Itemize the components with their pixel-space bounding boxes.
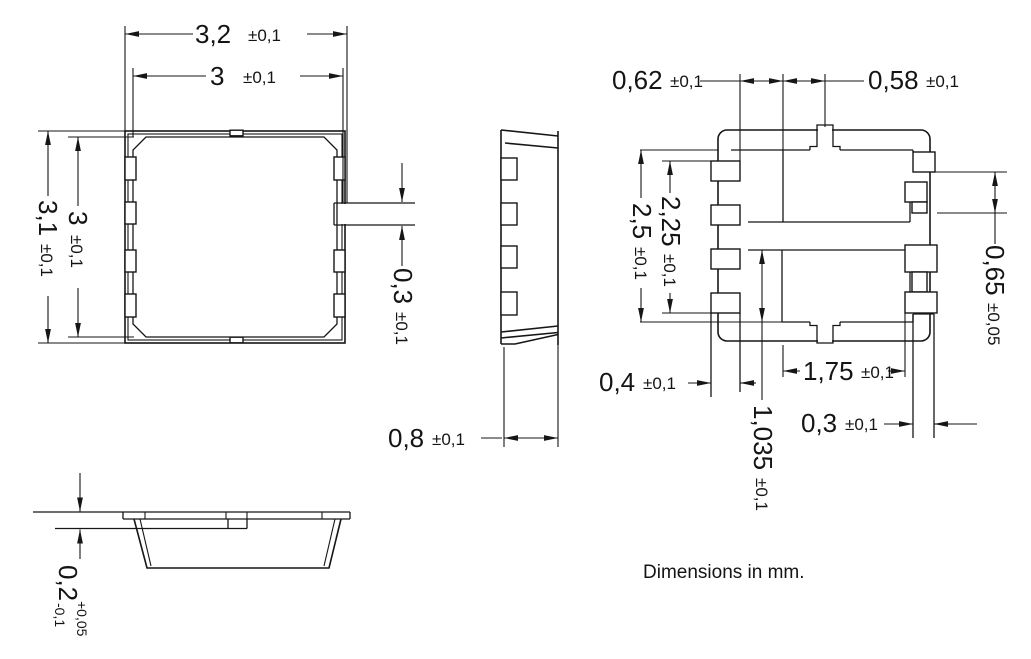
dim-top-height-outer-tol: ±0,1 [37,244,56,277]
dim-pad-right-value: 0,65 [980,245,1010,296]
bottom-seam-mark [230,337,243,343]
dim-center-width-tol: ±0,1 [861,363,894,382]
dim-top-height-lid-tol: ±0,1 [67,235,86,268]
dim-top-width-lid-value: 3 [210,61,224,91]
dim-span-outer-tol: ±0,1 [631,247,650,280]
dim-leg-width-value: 0,3 [801,408,837,438]
dim-front-step-tol-minus: -0,1 [52,603,68,627]
dim-gap-left-value: 0,62 [612,65,663,95]
dim-gap-right-value: 0,58 [868,65,919,95]
dim-pad-width-tol: ±0,1 [643,374,676,393]
dim-span-inner-value: 2,25 [656,196,686,247]
dim-top-tab-value: 0,3 [388,268,418,304]
caption: Dimensions in mm. [643,562,805,583]
dim-center-height-value: 1,035 [748,405,778,470]
dim-center-width-value: 1,75 [803,356,854,386]
dim-top-height-outer-value: 3,1 [33,200,63,236]
dim-gap-right-tol: ±0,1 [926,72,959,91]
top-view: 3,2 ±0,1 3 ±0,1 3,1 ±0,1 3 ±0,1 0,3 ±0,1 [33,19,418,345]
technical-drawing: 3,2 ±0,1 3 ±0,1 3,1 ±0,1 3 ±0,1 0,3 ±0,1… [0,0,1031,659]
dim-gap-left-tol: ±0,1 [670,72,703,91]
dim-side-thickness-tol: ±0,1 [432,430,465,449]
bottom-view-bottom-tab [782,314,934,343]
dim-top-height-lid-value: 3 [63,211,93,225]
dim-top-tab-tol: ±0,1 [392,312,411,345]
dim-top-width-outer-tol: ±0,1 [248,26,281,45]
dim-pad-width-value: 0,4 [599,367,635,397]
dim-front-step-value: 0,2 [53,565,83,601]
dim-front-step-tol-plus: +0,05 [74,601,90,637]
dim-span-outer-value: 2,5 [627,203,657,239]
dim-side-thickness-value: 0,8 [388,423,424,453]
dim-top-width-outer-value: 3,2 [195,19,231,49]
technical-drawing-page: 3,2 ±0,1 3 ±0,1 3,1 ±0,1 3 ±0,1 0,3 ±0,1… [0,0,1031,659]
dim-center-height-tol: ±0,1 [752,478,771,511]
front-view: 0,2 +0,05 -0,1 [33,473,350,637]
dim-top-width-lid-tol: ±0,1 [243,68,276,87]
front-tab [228,519,247,529]
top-seam-mark [230,130,243,136]
dim-leg-width-tol: ±0,1 [845,415,878,434]
dim-span-inner-tol: ±0,1 [660,254,679,287]
dim-pad-right-tol: ±0,05 [984,303,1003,345]
bottom-view: 0,62 ±0,1 0,58 ±0,1 2,5 ±0,1 2,25 ±0,1 0… [599,65,1010,511]
